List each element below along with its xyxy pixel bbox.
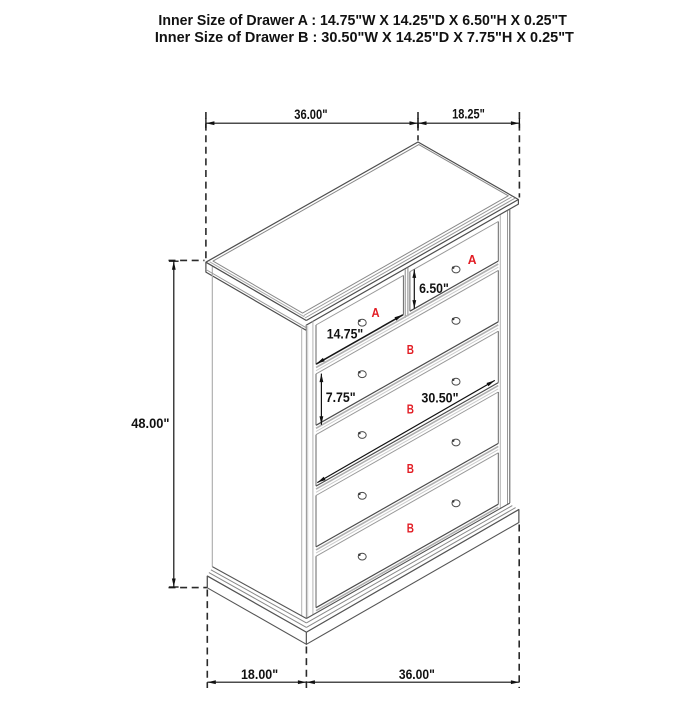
svg-text:A: A bbox=[372, 305, 380, 320]
svg-text:36.00": 36.00" bbox=[399, 667, 435, 682]
svg-text:7.75": 7.75" bbox=[326, 390, 356, 405]
svg-text:18.25": 18.25" bbox=[452, 107, 485, 122]
svg-text:B: B bbox=[407, 461, 414, 476]
svg-text:B: B bbox=[407, 342, 414, 357]
svg-text:18.00": 18.00" bbox=[241, 667, 278, 682]
svg-text:Inner Size of Drawer B : 30.50: Inner Size of Drawer B : 30.50"W X 14.25… bbox=[155, 30, 574, 46]
svg-text:B: B bbox=[407, 521, 414, 536]
svg-text:Inner Size of Drawer A : 14.75: Inner Size of Drawer A : 14.75"W X 14.25… bbox=[158, 13, 567, 29]
svg-text:14.75": 14.75" bbox=[327, 327, 363, 342]
svg-text:48.00": 48.00" bbox=[131, 416, 169, 431]
svg-text:B: B bbox=[407, 402, 414, 417]
svg-text:30.50": 30.50" bbox=[421, 390, 458, 405]
svg-text:A: A bbox=[468, 252, 477, 267]
svg-text:6.50": 6.50" bbox=[419, 281, 449, 296]
svg-text:36.00": 36.00" bbox=[294, 107, 327, 122]
